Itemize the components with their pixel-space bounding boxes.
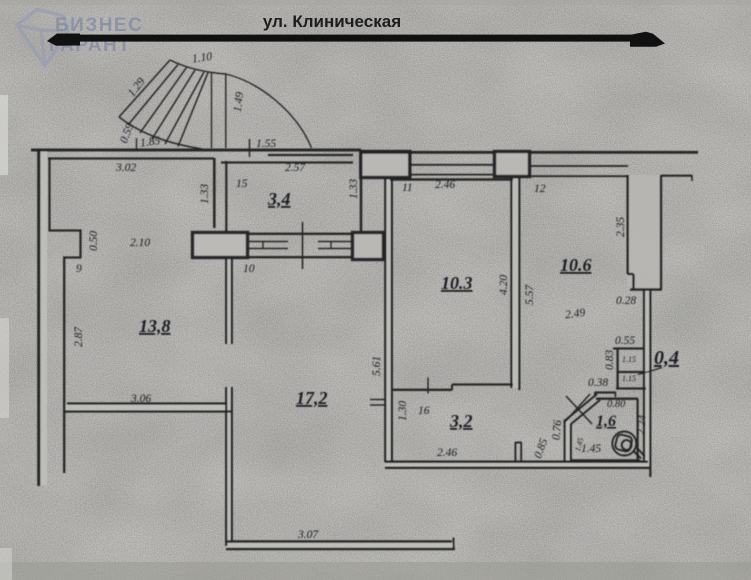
svg-text:0.28: 0.28 (616, 295, 636, 307)
svg-text:16: 16 (418, 405, 430, 417)
svg-text:1.49: 1.49 (232, 91, 246, 113)
svg-text:2.46: 2.46 (435, 179, 455, 191)
svg-text:2.87: 2.87 (73, 326, 85, 347)
svg-text:3.07: 3.07 (297, 529, 319, 541)
svg-text:0.55: 0.55 (615, 335, 635, 347)
svg-text:2.46: 2.46 (437, 447, 457, 459)
svg-text:4.20: 4.20 (498, 275, 510, 295)
svg-text:10.3: 10.3 (441, 273, 473, 293)
svg-text:3.06: 3.06 (130, 393, 151, 405)
svg-text:11: 11 (402, 182, 413, 194)
svg-text:1.30: 1.30 (397, 401, 409, 421)
svg-text:13,8: 13,8 (139, 316, 171, 336)
svg-text:1,6: 1,6 (596, 413, 616, 430)
svg-text:2.57: 2.57 (285, 162, 306, 174)
svg-text:0.38: 0.38 (588, 377, 608, 389)
svg-text:12: 12 (534, 183, 546, 195)
svg-text:3.02: 3.02 (115, 162, 136, 174)
svg-text:2.49: 2.49 (564, 307, 586, 321)
svg-text:БИЗНЕС: БИЗНЕС (55, 15, 143, 36)
svg-text:10.6: 10.6 (560, 255, 592, 275)
svg-text:1.55: 1.55 (256, 138, 276, 150)
svg-text:0.50: 0.50 (88, 231, 100, 251)
svg-text:1.15: 1.15 (622, 374, 636, 383)
svg-text:0.76: 0.76 (551, 419, 565, 440)
svg-text:9: 9 (76, 263, 82, 275)
svg-text:3,4: 3,4 (267, 189, 291, 209)
svg-text:10: 10 (243, 263, 255, 275)
svg-text:1.45: 1.45 (581, 443, 601, 455)
svg-text:17,2: 17,2 (296, 388, 328, 408)
svg-text:1.15: 1.15 (622, 355, 636, 364)
svg-text:15: 15 (236, 178, 248, 190)
svg-text:0.83: 0.83 (604, 350, 616, 370)
svg-text:5.57: 5.57 (524, 284, 536, 305)
svg-text:5.61: 5.61 (371, 356, 383, 376)
svg-text:1.33: 1.33 (348, 179, 360, 199)
svg-text:3,2: 3,2 (449, 411, 473, 431)
svg-text:1.33: 1.33 (199, 184, 211, 204)
svg-text:2.24: 2.24 (636, 414, 649, 435)
svg-text:0.80: 0.80 (607, 399, 626, 410)
svg-text:ул. Клиническая: ул. Клиническая (263, 12, 401, 31)
svg-text:2.35: 2.35 (615, 217, 627, 237)
svg-text:0,4: 0,4 (654, 347, 679, 369)
svg-text:2.10: 2.10 (130, 237, 150, 249)
